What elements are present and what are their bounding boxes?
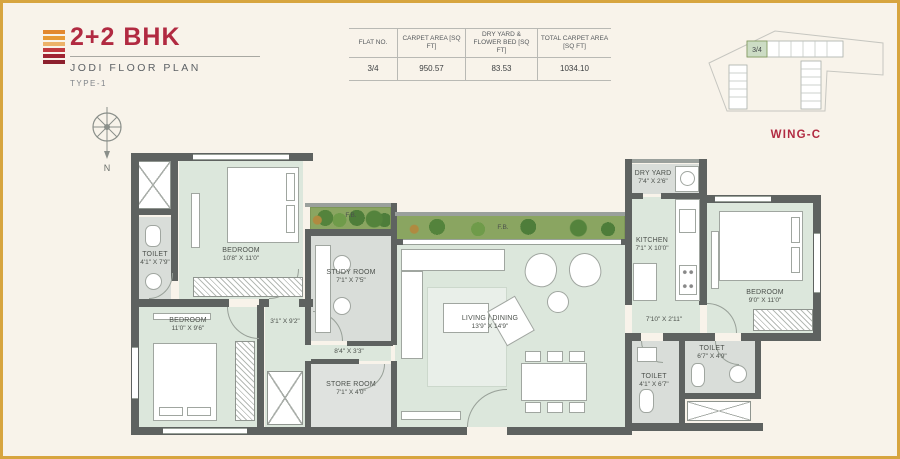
col-header-flat-no: FLAT NO.	[349, 29, 397, 57]
study-desk	[315, 245, 331, 333]
building-left	[729, 65, 747, 109]
dining-table	[521, 363, 587, 401]
wardrobe	[235, 341, 255, 421]
page-subtitle: JODI FLOOR PLAN	[70, 62, 201, 74]
wc	[639, 389, 654, 413]
plan-type-label: TYPE-1	[70, 79, 107, 88]
wall	[391, 203, 397, 345]
window	[163, 428, 247, 434]
wall	[741, 333, 821, 341]
sofa	[401, 271, 423, 359]
title-underline	[70, 56, 260, 57]
wall	[679, 339, 685, 427]
side-table	[547, 291, 569, 313]
dining-chair	[525, 402, 541, 413]
wall	[625, 333, 641, 341]
area-table: FLAT NO. CARPET AREA [SQ FT] DRY YARD & …	[349, 28, 611, 81]
label-bedroom1: BEDROOM 10'8" X 11'0"	[199, 247, 283, 263]
wall	[395, 212, 631, 216]
wall	[625, 159, 707, 163]
dining-chair	[547, 351, 563, 362]
label-passage2: 8'4" X 3'3"	[321, 347, 377, 356]
kitchen-sink	[679, 209, 696, 233]
label-study: STUDY ROOM 7'1" X 7'5"	[319, 269, 383, 285]
wall	[305, 203, 397, 207]
label-passage3: 7'10" X 2'11"	[621, 315, 707, 324]
label-bedroom3: BEDROOM 9'0" X 11'0"	[727, 289, 803, 305]
compass-north-label: N	[104, 163, 111, 173]
wall	[305, 229, 397, 236]
label-toilet2: TOILET 4'1" X 6'7"	[629, 373, 679, 389]
kitchen-platform	[633, 263, 657, 301]
wall	[347, 341, 393, 346]
col-header-dry-yard: DRY YARD & FLOWER BED [SQ FT]	[465, 29, 537, 57]
duct-shaft	[687, 401, 751, 421]
area-table-data-row: 3/4 950.57 83.53 1034.10	[349, 58, 611, 80]
logo-bar	[43, 60, 65, 64]
label-fb2: F.B.	[489, 223, 517, 232]
chair	[333, 297, 351, 315]
wing-key-plan: 3/4	[703, 19, 889, 123]
wall	[507, 427, 631, 435]
pillow	[159, 407, 183, 416]
wall	[305, 427, 467, 435]
wing-label: WING-C	[703, 129, 889, 141]
duct-shaft	[135, 161, 171, 209]
label-store: STORE ROOM 7'1" X 4'0"	[315, 381, 387, 397]
washbasin	[637, 347, 657, 362]
pillow	[791, 247, 800, 273]
wc	[691, 363, 705, 387]
wall	[311, 359, 359, 364]
pillow	[286, 205, 295, 233]
console-shelf	[401, 411, 461, 420]
logo-bar	[43, 30, 65, 34]
logo-bar	[43, 36, 65, 40]
wall	[305, 229, 311, 345]
duct-shaft	[267, 371, 303, 425]
wall	[131, 299, 229, 307]
window	[403, 239, 621, 245]
washing-machine-door	[680, 171, 695, 186]
area-table-header-row: FLAT NO. CARPET AREA [SQ FT] DRY YARD & …	[349, 29, 611, 58]
wall	[685, 393, 761, 399]
total-carpet-value: 1034.10	[537, 58, 611, 80]
flat-no-value: 3/4	[349, 58, 397, 80]
label-passage1: 3'1" X 9'2"	[265, 317, 305, 326]
label-toilet1: TOILET 4'1" X 7'9"	[133, 251, 177, 267]
wall	[131, 209, 175, 215]
label-kitchen: KITCHEN 7'1" X 10'0"	[629, 237, 675, 253]
dining-chair	[525, 351, 541, 362]
hob	[679, 265, 697, 295]
wc	[145, 225, 161, 247]
compass-icon: N	[81, 101, 133, 173]
col-header-total-carpet: TOTAL CARPET AREA [SQ FT]	[537, 29, 611, 57]
highlighted-unit-label: 3/4	[752, 47, 762, 54]
carpet-area-value: 950.57	[397, 58, 465, 80]
pillow	[791, 217, 800, 243]
window	[193, 154, 289, 160]
page-title: 2+2 BHK	[70, 23, 181, 52]
brand-logo-icon	[43, 30, 65, 64]
window	[814, 233, 820, 293]
label-dryyard: DRY YARD 7'4" X 2'6"	[631, 170, 675, 186]
label-living: LIVING / DINING 13'9" X 14'9"	[450, 315, 530, 331]
window	[715, 196, 771, 202]
label-bedroom2: BEDROOM 11'0" X 9'6"	[145, 317, 231, 333]
wall	[391, 361, 397, 429]
wall	[755, 341, 761, 397]
dresser	[711, 231, 719, 289]
rug	[427, 287, 507, 387]
wall	[699, 159, 707, 305]
washbasin	[145, 273, 162, 290]
label-fb1: F.B.	[337, 211, 365, 220]
label-toilet3: TOILET 6'7" X 4'9"	[687, 345, 737, 361]
wall	[305, 361, 311, 429]
window	[132, 347, 138, 399]
floor-plan-page: 2+2 BHK JODI FLOOR PLAN TYPE-1 FLAT NO. …	[0, 0, 900, 459]
dining-chair	[547, 402, 563, 413]
wall	[625, 423, 763, 431]
washbasin	[729, 365, 747, 383]
wardrobe	[193, 277, 303, 297]
dry-yard-value: 83.53	[465, 58, 537, 80]
dresser	[191, 193, 200, 248]
wardrobe	[753, 309, 813, 331]
logo-bar	[43, 54, 65, 58]
dining-chair	[569, 402, 585, 413]
logo-bar	[43, 42, 65, 46]
dining-chair	[569, 351, 585, 362]
sofa	[401, 249, 505, 271]
logo-bar	[43, 48, 65, 52]
pillow	[187, 407, 211, 416]
col-header-carpet-area: CARPET AREA [SQ FT]	[397, 29, 465, 57]
pillow	[286, 173, 295, 201]
